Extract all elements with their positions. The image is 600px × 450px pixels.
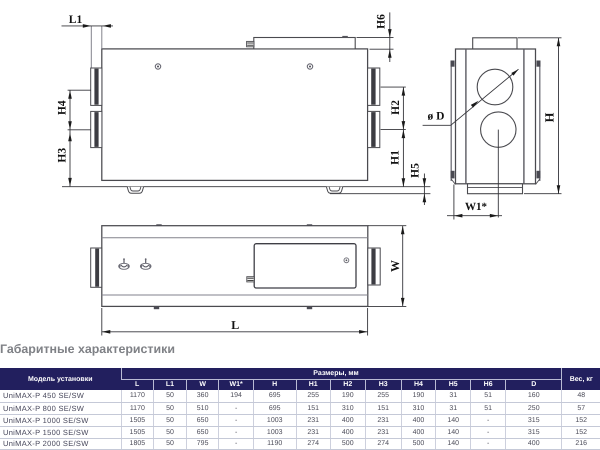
svg-text:ø D: ø D bbox=[428, 111, 445, 123]
svg-text:W: W bbox=[388, 260, 402, 272]
svg-text:H6: H6 bbox=[376, 14, 388, 29]
svg-text:L1: L1 bbox=[69, 14, 83, 26]
svg-text:H3: H3 bbox=[57, 148, 69, 163]
svg-text:H2: H2 bbox=[390, 100, 402, 115]
svg-text:H1: H1 bbox=[389, 150, 401, 165]
svg-text:H4: H4 bbox=[57, 100, 69, 115]
svg-text:H: H bbox=[543, 112, 557, 122]
svg-text:W1*: W1* bbox=[465, 201, 488, 213]
svg-text:H5: H5 bbox=[410, 163, 422, 178]
svg-text:L: L bbox=[231, 318, 239, 332]
